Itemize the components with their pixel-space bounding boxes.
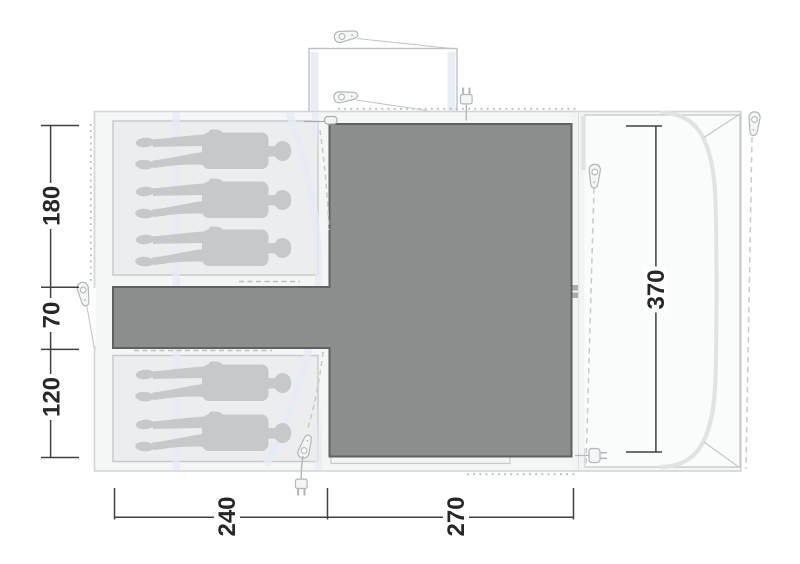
svg-text:270: 270: [443, 496, 470, 536]
svg-text:240: 240: [214, 496, 241, 536]
svg-text:180: 180: [38, 186, 65, 226]
svg-text:370: 370: [643, 269, 670, 309]
svg-text:120: 120: [38, 377, 65, 417]
svg-text:70: 70: [38, 302, 65, 329]
